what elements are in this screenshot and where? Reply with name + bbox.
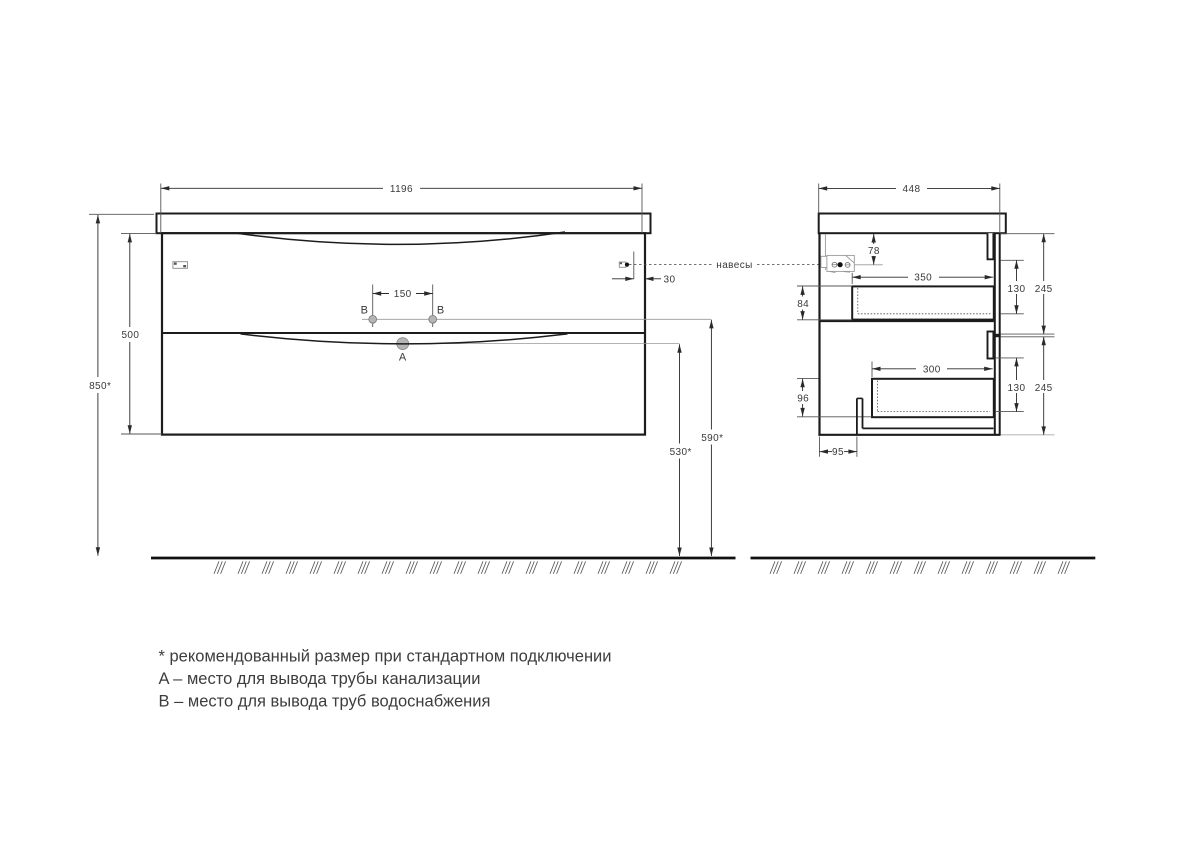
svg-text:245: 245 bbox=[1035, 284, 1053, 295]
svg-text:78: 78 bbox=[868, 246, 880, 257]
svg-text:130: 130 bbox=[1008, 383, 1026, 394]
svg-text:A: A bbox=[399, 352, 407, 364]
svg-text:* рекомендованный размер при с: * рекомендованный размер при стандартном… bbox=[159, 648, 612, 666]
svg-text:B – место для вывода труб водо: B – место для вывода труб водоснабжения bbox=[159, 693, 491, 711]
svg-text:84: 84 bbox=[797, 299, 809, 310]
svg-text:590*: 590* bbox=[701, 433, 723, 444]
svg-text:95: 95 bbox=[832, 447, 844, 458]
svg-text:30: 30 bbox=[664, 274, 676, 285]
svg-text:1196: 1196 bbox=[390, 184, 413, 195]
svg-text:B: B bbox=[437, 304, 445, 316]
svg-text:A – место для вывода трубы кан: A – место для вывода трубы канализации bbox=[159, 670, 481, 688]
svg-text:448: 448 bbox=[903, 184, 921, 195]
svg-text:850*: 850* bbox=[89, 381, 111, 392]
svg-text:350: 350 bbox=[914, 273, 932, 284]
svg-text:500: 500 bbox=[121, 330, 139, 341]
svg-text:245: 245 bbox=[1035, 383, 1053, 394]
svg-text:300: 300 bbox=[923, 364, 941, 375]
svg-text:530*: 530* bbox=[670, 447, 692, 458]
svg-text:B: B bbox=[361, 304, 369, 316]
svg-text:130: 130 bbox=[1008, 284, 1026, 295]
svg-text:навесы: навесы bbox=[716, 260, 752, 271]
svg-text:96: 96 bbox=[797, 393, 809, 404]
svg-text:150: 150 bbox=[394, 289, 412, 300]
